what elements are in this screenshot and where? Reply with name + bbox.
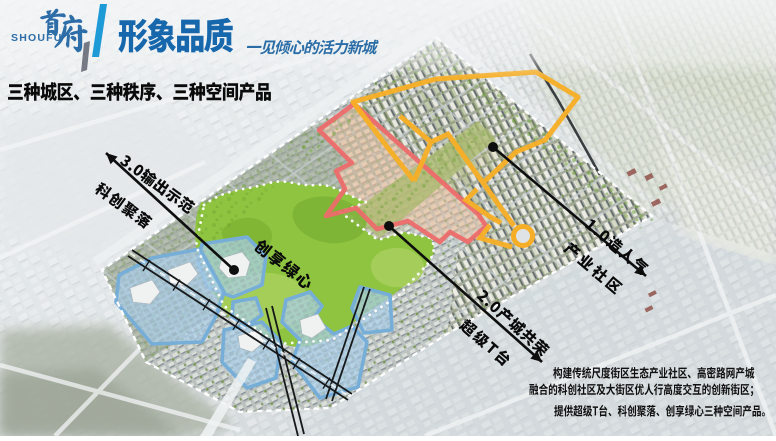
svg-text:SHOUFU: SHOUFU [11,32,63,44]
